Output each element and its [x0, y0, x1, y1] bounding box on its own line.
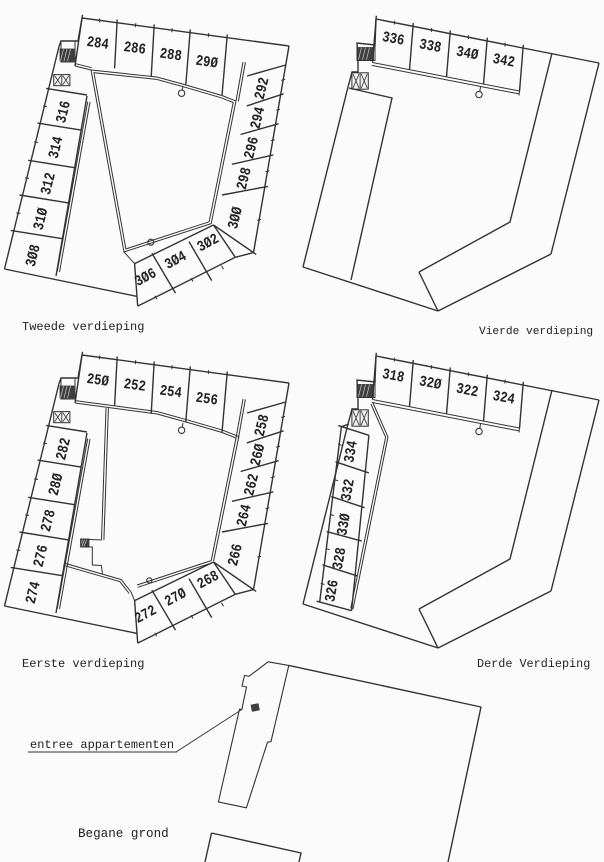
svg-text:252: 252 [122, 377, 146, 396]
svg-text:254: 254 [158, 384, 182, 403]
svg-text:25Ø: 25Ø [85, 371, 109, 391]
svg-text:29Ø: 29Ø [194, 53, 218, 73]
svg-text:286: 286 [122, 40, 146, 59]
svg-text:Eerste verdieping: Eerste verdieping [22, 657, 144, 671]
svg-text:Vierde verdieping: Vierde verdieping [479, 326, 593, 338]
svg-text:Derde Verdieping: Derde Verdieping [477, 657, 590, 671]
svg-text:256: 256 [194, 391, 218, 410]
svg-text:284: 284 [85, 35, 109, 54]
svg-text:Tweede verdieping: Tweede verdieping [22, 320, 144, 334]
svg-text:Begane grond: Begane grond [78, 827, 169, 841]
svg-text:entree appartementen: entree appartementen [30, 738, 174, 752]
svg-text:288: 288 [158, 47, 182, 66]
